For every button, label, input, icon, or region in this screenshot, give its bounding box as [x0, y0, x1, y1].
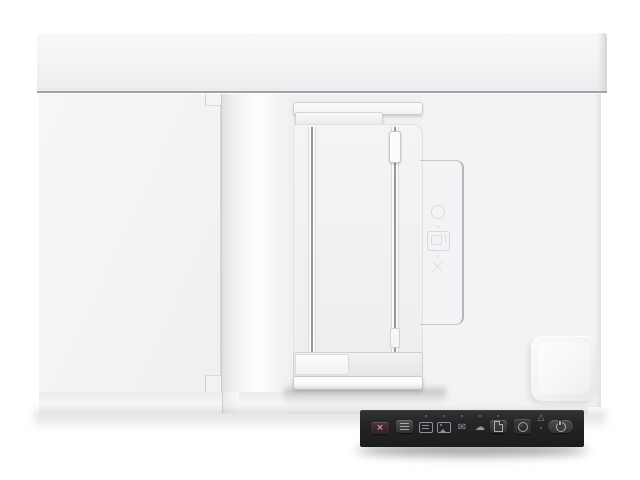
guide-rail-knob-upper	[389, 131, 401, 163]
email-led	[461, 415, 463, 417]
cloud-icon: ☁	[475, 423, 485, 433]
scan-to-image-indicator	[437, 422, 451, 433]
lines-icon	[400, 426, 409, 427]
pdf-file-icon	[419, 422, 433, 433]
lid-notch-top	[205, 94, 221, 106]
warning-indicator: △	[533, 412, 549, 424]
corner-latch-bump-face	[538, 342, 590, 394]
pdf-led	[425, 415, 427, 417]
scan-to-pdf-indicator	[419, 422, 433, 433]
image-led	[443, 415, 445, 417]
cloud-led	[479, 415, 481, 417]
power-icon	[556, 422, 566, 432]
cancel-button: ×	[371, 422, 389, 434]
scan-to-cloud-indicator: ☁	[473, 422, 487, 433]
scan-led	[497, 415, 499, 417]
guide-rail-left-slot	[311, 127, 313, 352]
warning-triangle-icon: △	[538, 413, 545, 423]
lines-icon	[400, 423, 409, 424]
rear-hinge-bar	[37, 33, 607, 91]
corner-latch-bump	[531, 336, 597, 401]
lines-icon	[400, 429, 409, 430]
feed-mode-button	[396, 420, 413, 433]
scanner-product-photo: × ✉ ☁ △	[0, 0, 640, 480]
scan-to-email-indicator: ✉	[455, 422, 469, 433]
guide-rail-left	[308, 127, 316, 352]
scan-button	[490, 420, 507, 433]
hinge-strip-tab	[222, 392, 239, 413]
envelope-icon: ✉	[458, 423, 466, 433]
document-icon	[494, 421, 503, 432]
warning-led	[540, 427, 542, 429]
adf-cast-shadow	[284, 388, 446, 404]
embossed-dot	[437, 255, 439, 257]
embossed-dot	[437, 226, 439, 228]
paper-stack-icon	[427, 231, 450, 251]
gear-circle-icon	[518, 422, 528, 432]
cancel-x-icon: ×	[376, 424, 384, 433]
cross-arrows-icon	[431, 260, 444, 273]
power-button	[548, 420, 573, 433]
adf-bottom-guide-slider	[295, 354, 349, 375]
settings-button	[514, 419, 531, 434]
body-right-bevel	[594, 94, 601, 413]
paper-stack-icon-line	[445, 235, 446, 243]
lid-notch-bottom	[205, 375, 221, 393]
lid-hinge-strip	[221, 94, 287, 392]
image-icon	[437, 422, 451, 433]
rotate-circle-icon	[431, 205, 445, 219]
paper-stack-icon-inner	[431, 235, 442, 245]
control-panel: × ✉ ☁ △	[360, 410, 584, 447]
rear-bar-right-bevel	[598, 33, 607, 91]
guide-rail-knob-lower	[390, 328, 400, 348]
flatbed-lid	[39, 94, 221, 393]
